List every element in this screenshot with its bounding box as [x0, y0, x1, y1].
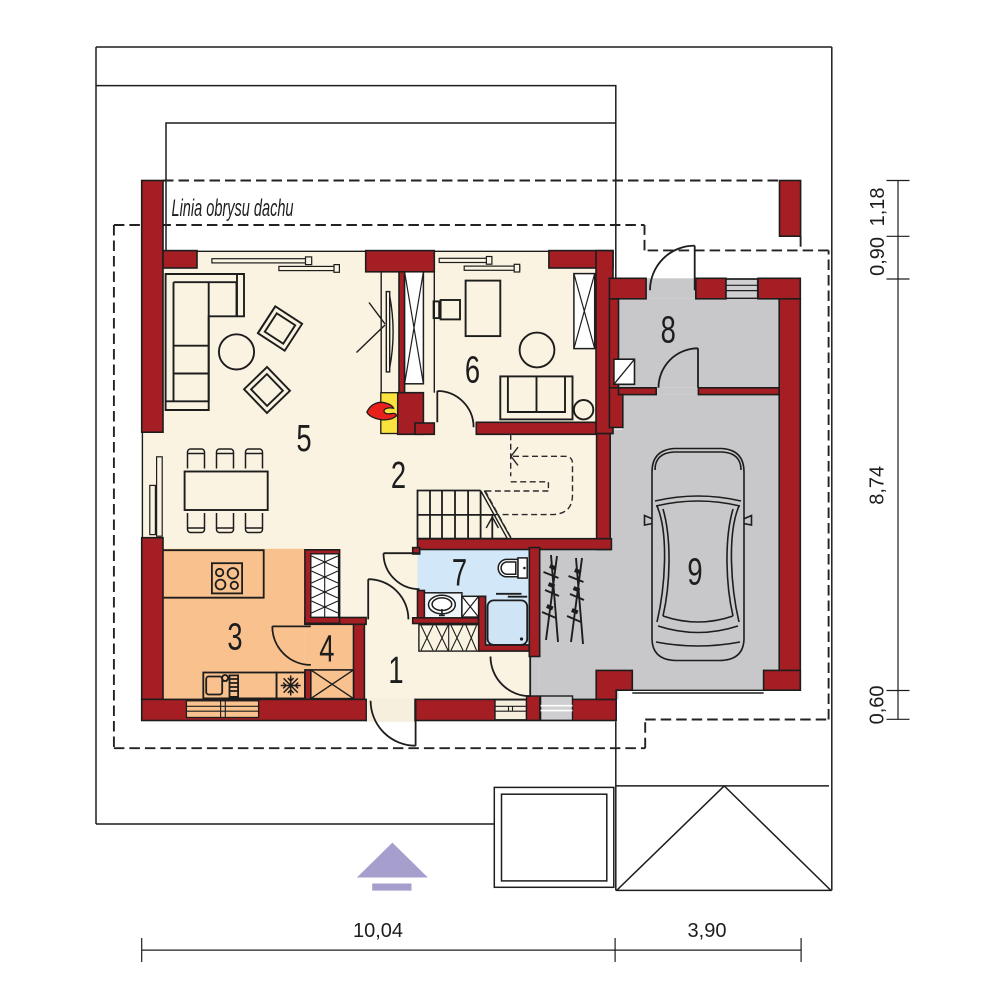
- svg-text:9: 9: [687, 551, 702, 593]
- svg-text:7: 7: [452, 552, 467, 594]
- svg-text:Linia obrysu dachu: Linia obrysu dachu: [172, 195, 294, 222]
- svg-text:2: 2: [391, 455, 406, 497]
- svg-text:3,90: 3,90: [688, 920, 727, 942]
- svg-text:10,04: 10,04: [353, 920, 403, 942]
- svg-text:0,60: 0,60: [867, 685, 889, 724]
- svg-text:1,18: 1,18: [867, 187, 889, 226]
- svg-text:8,74: 8,74: [867, 466, 889, 505]
- svg-text:5: 5: [296, 418, 311, 460]
- svg-text:0,90: 0,90: [867, 237, 889, 276]
- svg-text:1: 1: [388, 650, 403, 692]
- svg-text:6: 6: [465, 349, 480, 391]
- svg-text:3: 3: [227, 616, 242, 658]
- svg-text:4: 4: [319, 628, 334, 670]
- svg-text:8: 8: [661, 309, 676, 351]
